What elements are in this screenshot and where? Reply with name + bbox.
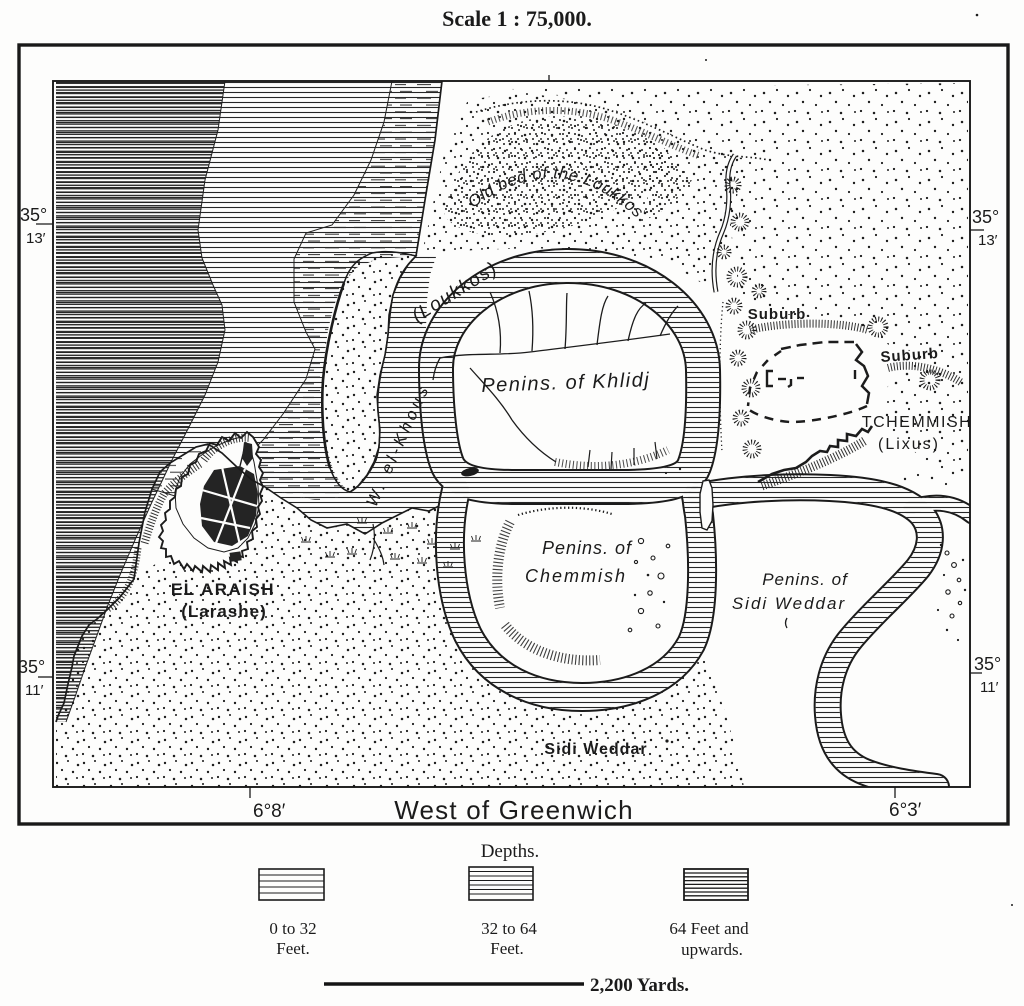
svg-text:Feet.: Feet. xyxy=(276,939,310,958)
svg-text:West of Greenwich: West of Greenwich xyxy=(394,795,634,825)
svg-text:64 Feet and: 64 Feet and xyxy=(669,919,749,938)
svg-text:13′: 13′ xyxy=(26,230,46,247)
svg-text:6°3′: 6°3′ xyxy=(889,800,922,821)
svg-text:13′: 13′ xyxy=(978,232,998,249)
svg-text:(Lixus): (Lixus) xyxy=(878,436,940,453)
svg-text:Chemmish: Chemmish xyxy=(525,566,627,586)
svg-text:Feet.: Feet. xyxy=(490,939,524,958)
svg-text:11′: 11′ xyxy=(980,679,999,696)
svg-text:0 to 32: 0 to 32 xyxy=(269,919,316,938)
svg-text:35°: 35° xyxy=(972,207,999,227)
svg-text:Penins. of: Penins. of xyxy=(542,538,633,558)
svg-text:TCHEMMISH: TCHEMMISH xyxy=(862,414,972,431)
svg-text:35°: 35° xyxy=(20,205,47,225)
svg-text:35°: 35° xyxy=(974,654,1001,674)
svg-text:upwards.: upwards. xyxy=(681,940,743,959)
svg-text:EL ARAISH: EL ARAISH xyxy=(171,580,275,599)
svg-text:(Larashe): (Larashe) xyxy=(181,602,267,621)
svg-text:2,200 Yards.: 2,200 Yards. xyxy=(590,975,689,996)
svg-text:Scale 1 : 75,000.: Scale 1 : 75,000. xyxy=(442,6,592,31)
svg-text:Penins. of: Penins. of xyxy=(762,570,849,589)
svg-text:Depths.: Depths. xyxy=(481,841,540,862)
svg-text:Sidi Weddar: Sidi Weddar xyxy=(544,741,647,758)
svg-text:Sidi Weddar: Sidi Weddar xyxy=(732,594,846,613)
svg-text:11′: 11′ xyxy=(25,682,44,699)
svg-text:35°: 35° xyxy=(18,657,45,677)
svg-text:Suburb: Suburb xyxy=(748,306,807,323)
svg-text:32 to 64: 32 to 64 xyxy=(481,919,537,938)
svg-text:6°8′: 6°8′ xyxy=(253,801,286,822)
